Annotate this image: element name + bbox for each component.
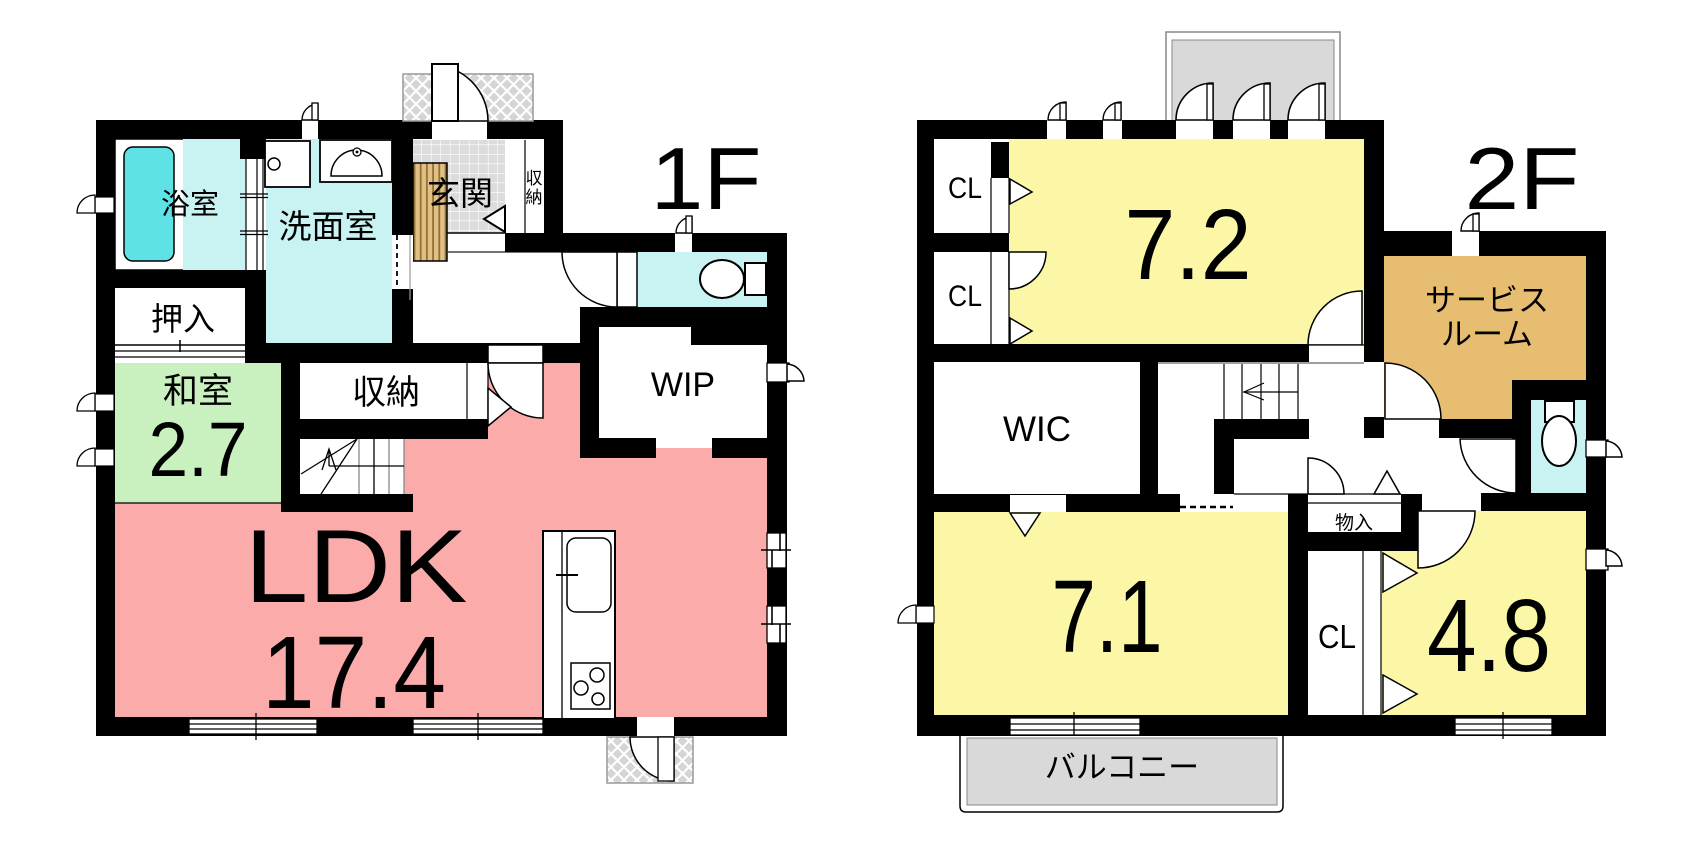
svg-text:WIC: WIC: [1003, 410, 1071, 449]
svg-text:2.7: 2.7: [149, 407, 248, 493]
svg-text:玄関: 玄関: [427, 175, 493, 212]
svg-text:和室: 和室: [163, 372, 233, 411]
svg-text:ルーム: ルーム: [1441, 317, 1533, 352]
svg-text:サービス: サービス: [1425, 283, 1549, 318]
svg-text:バルコニー: バルコニー: [1045, 750, 1199, 785]
svg-text:納: 納: [526, 188, 543, 207]
svg-text:4.8: 4.8: [1427, 578, 1551, 693]
svg-text:CL: CL: [948, 280, 982, 313]
svg-text:浴室: 浴室: [161, 188, 219, 221]
svg-text:2F: 2F: [1465, 129, 1580, 228]
svg-text:1F: 1F: [651, 129, 762, 228]
svg-text:7.2: 7.2: [1125, 189, 1252, 301]
svg-text:LDK: LDK: [245, 509, 468, 625]
svg-text:収納: 収納: [352, 374, 420, 412]
svg-text:物入: 物入: [1335, 512, 1373, 534]
svg-text:CL: CL: [948, 172, 982, 205]
svg-text:CL: CL: [1318, 618, 1356, 655]
svg-text:押入: 押入: [151, 301, 215, 337]
svg-text:洗面室: 洗面室: [279, 208, 378, 245]
svg-text:収: 収: [526, 169, 543, 188]
svg-text:17.4: 17.4: [262, 615, 446, 730]
svg-text:WIP: WIP: [651, 366, 715, 404]
svg-text:7.1: 7.1: [1052, 559, 1163, 674]
